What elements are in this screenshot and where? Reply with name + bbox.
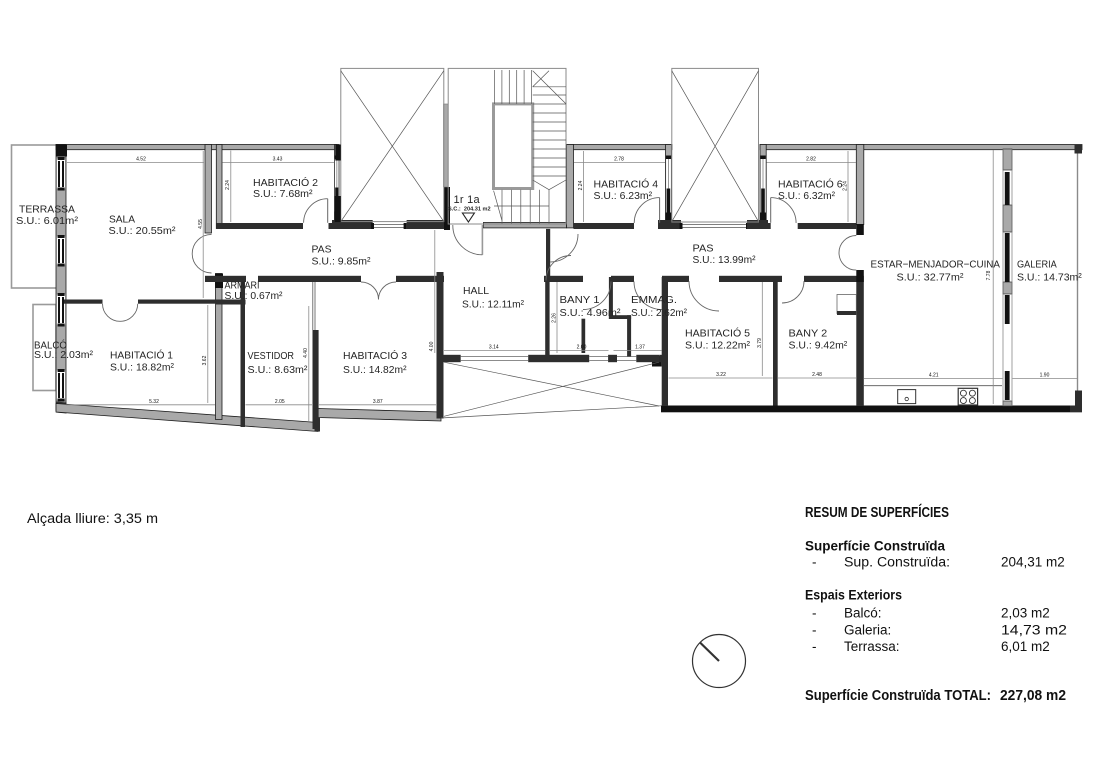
svg-text:SALA: SALA <box>109 214 135 226</box>
svg-text:S.U.: 13.99m²: S.U.: 13.99m² <box>693 254 756 266</box>
svg-text:2.26: 2.26 <box>552 313 558 323</box>
svg-text:Superfície Construïda: Superfície Construïda <box>805 538 945 554</box>
svg-text:2,03 m2: 2,03 m2 <box>1001 606 1050 621</box>
svg-text:S.U.: 9.85m²: S.U.: 9.85m² <box>312 256 372 268</box>
svg-text:S.U.: 2.03m²: S.U.: 2.03m² <box>34 349 94 361</box>
svg-text:S.U.: 14.73m²: S.U.: 14.73m² <box>1017 272 1082 284</box>
svg-text:3.14: 3.14 <box>489 345 499 351</box>
svg-text:4.40: 4.40 <box>303 348 309 358</box>
svg-text:S.U.: 6.23m²: S.U.: 6.23m² <box>594 190 653 202</box>
svg-text:3.79: 3.79 <box>757 338 763 348</box>
svg-text:4.55: 4.55 <box>198 219 204 229</box>
svg-text:-: - <box>812 639 817 654</box>
svg-text:HABITACIÓ 5: HABITACIÓ 5 <box>685 327 750 340</box>
svg-text:ESTAR−MENJADOR−CUINA: ESTAR−MENJADOR−CUINA <box>871 259 1001 271</box>
svg-text:S.U.: 12.22m²: S.U.: 12.22m² <box>685 340 750 352</box>
svg-text:S.U.: 6.01m²: S.U.: 6.01m² <box>16 215 79 227</box>
svg-text:S.U.: 4.96m²: S.U.: 4.96m² <box>560 307 622 319</box>
svg-text:1r 1a: 1r 1a <box>454 194 482 206</box>
svg-text:2.00: 2.00 <box>577 345 587 351</box>
svg-text:VESTIDOR: VESTIDOR <box>248 350 295 362</box>
svg-text:1.37: 1.37 <box>635 345 645 351</box>
svg-text:Balcó:: Balcó: <box>844 606 882 621</box>
svg-text:4.21: 4.21 <box>929 373 939 379</box>
svg-text:6,01 m2: 6,01 m2 <box>1001 639 1050 654</box>
svg-text:S.U.: 6.32m²: S.U.: 6.32m² <box>778 190 835 202</box>
svg-text:3.22: 3.22 <box>716 372 726 378</box>
svg-text:2.48: 2.48 <box>812 372 822 378</box>
svg-text:S.U.: 7.68m²: S.U.: 7.68m² <box>253 188 313 200</box>
svg-text:HABITACIÓ 3: HABITACIÓ 3 <box>343 349 407 362</box>
svg-text:S.U.: 2.62m²: S.U.: 2.62m² <box>631 307 687 319</box>
svg-text:S.U.: 9.42m²: S.U.: 9.42m² <box>789 340 848 352</box>
svg-text:4.00: 4.00 <box>429 341 435 351</box>
svg-text:S.U.: 32.77m²: S.U.: 32.77m² <box>897 272 965 284</box>
svg-text:HABITACIÓ 4: HABITACIÓ 4 <box>594 178 659 191</box>
svg-text:3.87: 3.87 <box>373 399 383 405</box>
svg-text:PAS: PAS <box>312 244 332 256</box>
svg-text:1.90: 1.90 <box>1040 373 1050 379</box>
svg-text:-: - <box>812 606 817 621</box>
svg-text:HALL: HALL <box>463 285 489 297</box>
svg-text:S.U.: 8.63m²: S.U.: 8.63m² <box>248 364 309 376</box>
svg-text:Alçada lliure: 3,35 m: Alçada lliure: 3,35 m <box>27 511 158 526</box>
svg-text:S.U.: 0.67m²: S.U.: 0.67m² <box>225 290 283 302</box>
svg-text:2.78: 2.78 <box>614 157 624 163</box>
svg-text:7.78: 7.78 <box>986 270 992 280</box>
svg-text:TERRASSA: TERRASSA <box>19 204 75 216</box>
svg-text:Galeria:: Galeria: <box>844 623 891 638</box>
svg-text:14,73 m2: 14,73 m2 <box>1001 623 1067 638</box>
svg-text:EMMAG.: EMMAG. <box>631 294 677 306</box>
svg-text:S.U.: 20.55m²: S.U.: 20.55m² <box>109 225 177 237</box>
svg-text:204,31 m2: 204,31 m2 <box>1001 555 1065 570</box>
svg-text:BANY 1: BANY 1 <box>560 294 600 306</box>
svg-text:S.C.: 204.31 m2: S.C.: 204.31 m2 <box>448 207 491 213</box>
svg-text:Terrassa:: Terrassa: <box>844 639 900 654</box>
svg-text:2.05: 2.05 <box>275 399 285 405</box>
svg-text:2.24: 2.24 <box>225 180 231 190</box>
svg-text:HABITACIÓ 1: HABITACIÓ 1 <box>110 349 173 362</box>
svg-text:5.32: 5.32 <box>149 399 159 405</box>
svg-text:2.82: 2.82 <box>806 157 816 163</box>
svg-text:-: - <box>812 555 817 570</box>
svg-text:3.62: 3.62 <box>202 355 208 365</box>
svg-text:Superfície Construïda TOTAL:: Superfície Construïda TOTAL: <box>805 688 991 704</box>
svg-text:Sup. Construïda:: Sup. Construïda: <box>844 555 950 570</box>
svg-text:2.24: 2.24 <box>842 181 848 191</box>
svg-text:S.U.: 12.11m²: S.U.: 12.11m² <box>462 299 524 311</box>
svg-text:3.43: 3.43 <box>273 157 283 163</box>
svg-text:HABITACIÓ 6: HABITACIÓ 6 <box>778 178 843 191</box>
svg-text:Espais Exteriors: Espais Exteriors <box>805 587 902 603</box>
svg-text:-: - <box>812 623 817 638</box>
svg-text:4.52: 4.52 <box>136 157 146 163</box>
svg-text:227,08 m2: 227,08 m2 <box>1000 688 1066 704</box>
svg-text:S.U.: 18.82m²: S.U.: 18.82m² <box>110 362 174 374</box>
svg-text:S.U.: 14.82m²: S.U.: 14.82m² <box>343 364 407 376</box>
svg-text:GALERIA: GALERIA <box>1017 259 1057 271</box>
svg-text:2.24: 2.24 <box>578 180 584 190</box>
svg-text:PAS: PAS <box>693 243 714 255</box>
svg-text:RESUM DE SUPERFÍCIES: RESUM DE SUPERFÍCIES <box>805 504 949 521</box>
svg-text:BANY 2: BANY 2 <box>789 328 828 340</box>
